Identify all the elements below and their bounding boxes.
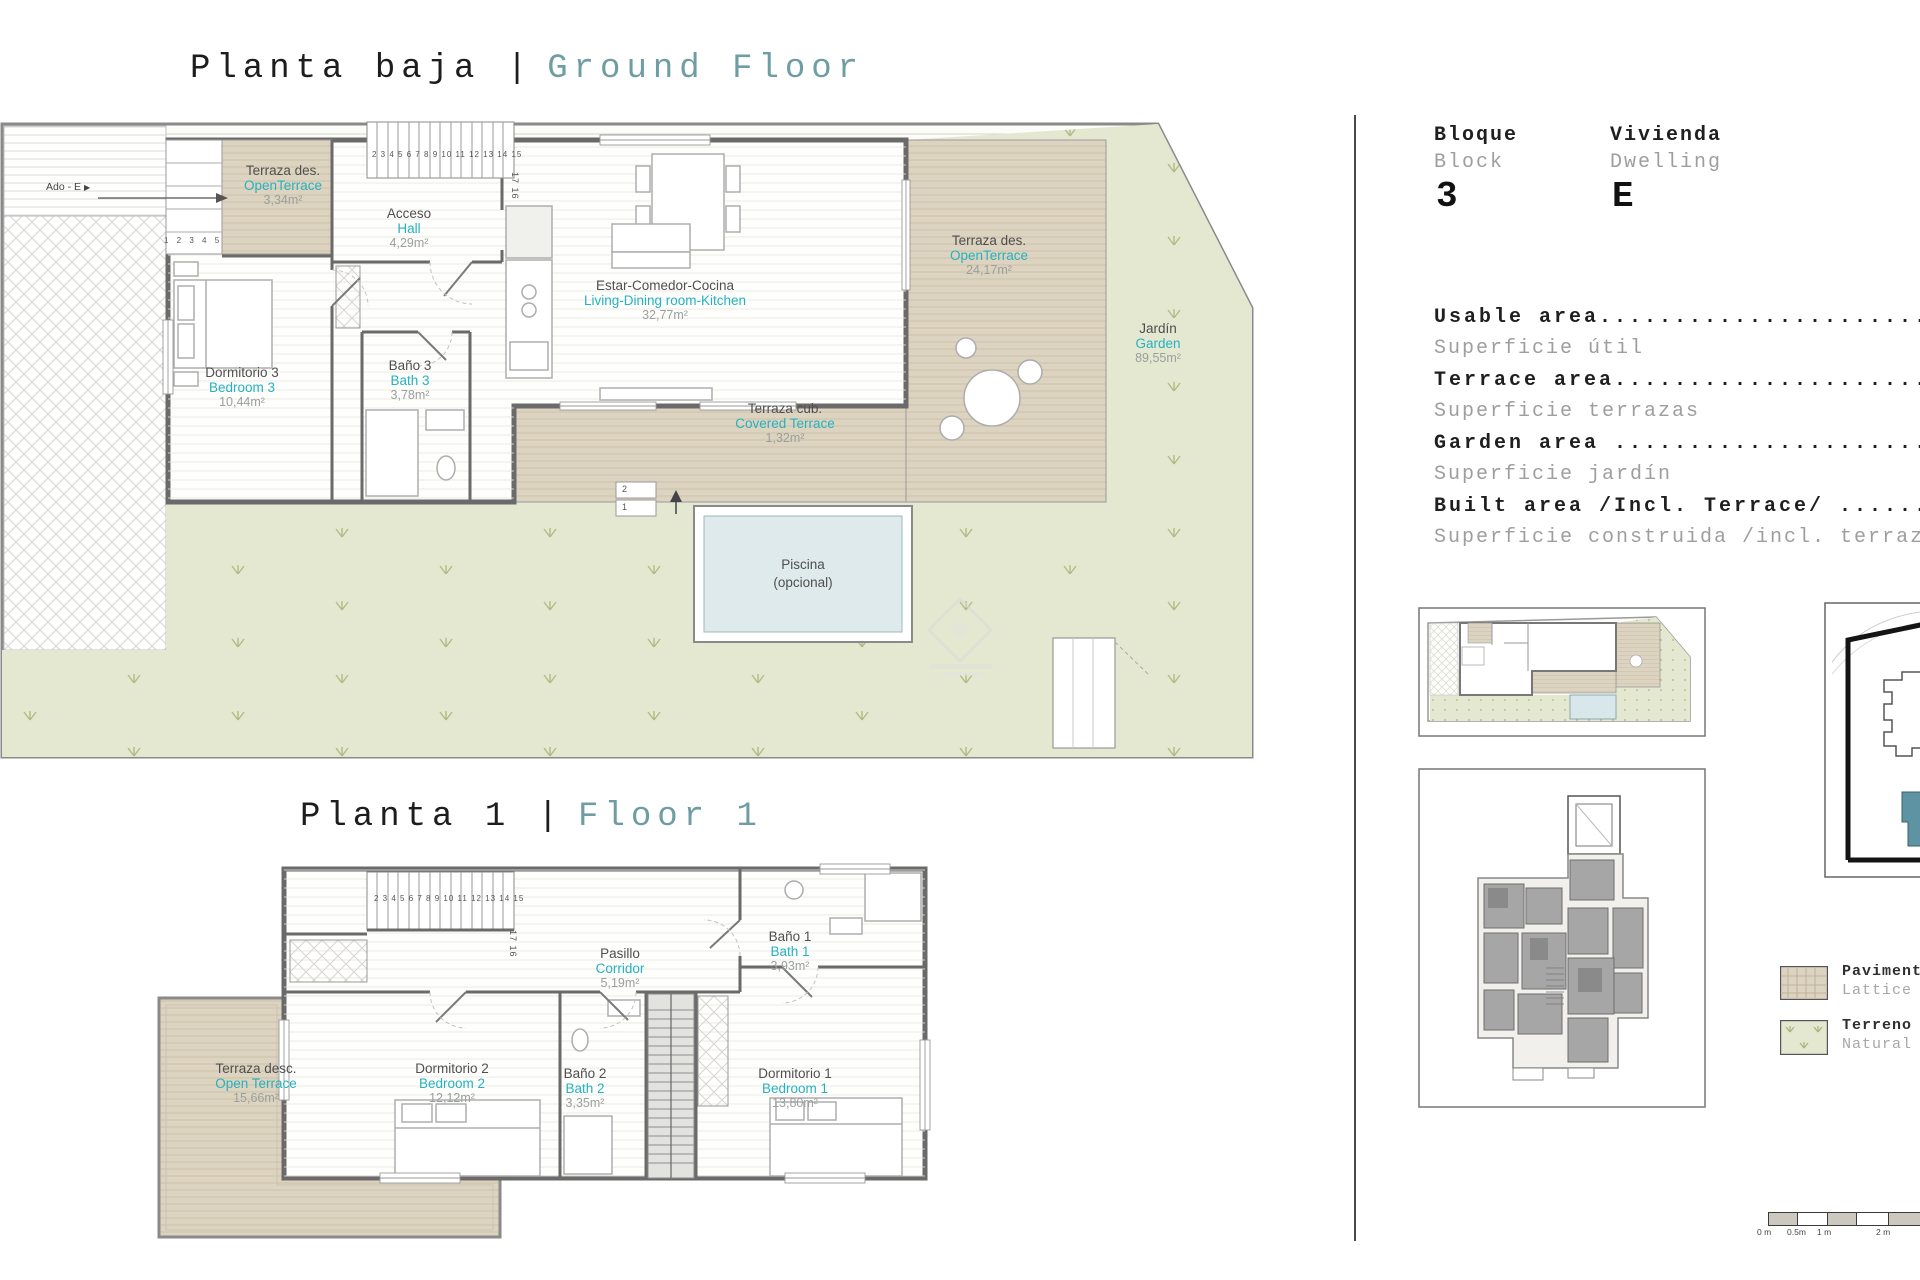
stair-numbers-top-f1: 2 3 4 5 6 7 8 9 10 11 12 13 14 15: [374, 894, 524, 903]
legend-swatch-lattice: [1780, 966, 1828, 1000]
room-label-bedroom2: Dormitorio 2 Bedroom 2 12,12m²: [415, 1061, 489, 1106]
ground-floor-title: Planta baja |Ground Floor: [190, 50, 864, 88]
area-row-built: Built area /Incl. Terrace/ .............…: [1434, 495, 1920, 518]
ground-floor-plan: [0, 110, 1260, 772]
stair-numbers-mid: 17 16: [510, 172, 520, 200]
scale-label-0: 0 m: [1757, 1227, 1771, 1237]
dwelling-label-es: Vivienda: [1610, 124, 1722, 147]
block-value: 3: [1436, 176, 1458, 217]
room-label-corridor: Pasillo Corridor 5,19m²: [596, 946, 645, 991]
room-label-covered-terrace: Terraza cub. Covered Terrace 1,32m²: [735, 401, 835, 446]
scale-label-05: 0.5m: [1787, 1227, 1806, 1237]
legend-label-lattice: Lattice: [1842, 982, 1912, 999]
panel-divider: [1354, 115, 1356, 1241]
stair-numbers-left: 1 2 3 4 5: [164, 236, 222, 245]
area-row-usable-es: Superficie útil: [1434, 337, 1920, 360]
stair-numbers-mid-f1: 17 16: [508, 930, 518, 958]
site-thumbnail-ground: [1418, 607, 1706, 737]
dwelling-value: E: [1612, 176, 1634, 217]
area-row-terrace: Terrace area............................…: [1434, 369, 1920, 392]
area-row-terrace-es: Superficie terrazas: [1434, 400, 1920, 423]
site-thumbnail-block: [1418, 768, 1706, 1108]
legend-label-natural: Natural: [1842, 1036, 1912, 1053]
room-label-hall: Acceso Hall 4,29m²: [387, 206, 431, 251]
room-label-terrace-f1: Terraza desc. Open Terrace 15,66m²: [215, 1061, 297, 1106]
area-row-built-es: Superficie construida /incl. terraza/: [1434, 526, 1920, 549]
room-label-living: Estar-Comedor-Cocina Living-Dining room-…: [584, 278, 746, 323]
floor1-title-en: Floor 1: [564, 798, 763, 836]
scale-label-1: 1 m: [1817, 1227, 1831, 1237]
room-label-bath2: Baño 2 Bath 2 3,35m²: [564, 1066, 607, 1111]
area-row-garden: Garden area ............................…: [1434, 432, 1920, 455]
scale-label-2: 2 m: [1876, 1227, 1890, 1237]
floor1-title: Planta 1 |Floor 1: [300, 798, 763, 836]
legend-label-terreno: Terreno: [1842, 1017, 1912, 1034]
ground-floor-title-es: Planta baja |: [190, 50, 533, 88]
block-label-es: Bloque: [1434, 124, 1518, 147]
pool-label: Piscina (opcional): [773, 556, 832, 592]
stair-numbers-top: 2 3 4 5 6 7 8 9 10 11 12 13 14 15: [372, 150, 522, 159]
room-label-garden: Jardín Garden 89,55m²: [1135, 321, 1181, 366]
room-label-terrace-small: Terraza des. OpenTerrace 3,34m²: [244, 163, 322, 208]
legend-swatch-natural: [1780, 1020, 1828, 1055]
legend-label-pavimento: Pavimento: [1842, 963, 1920, 980]
room-label-bedroom3: Dormitorio 3 Bedroom 3 10,44m²: [205, 365, 279, 410]
floor1-plan: [130, 860, 940, 1260]
area-row-garden-es: Superficie jardín: [1434, 463, 1920, 486]
ground-floor-title-en: Ground Floor: [533, 50, 864, 88]
room-label-bedroom1: Dormitorio 1 Bedroom 1 13,80m²: [758, 1066, 832, 1111]
pool-step-2: 2: [622, 484, 628, 494]
room-label-bath3: Baño 3 Bath 3 3,78m²: [389, 358, 432, 403]
block-label-en: Block: [1434, 151, 1504, 174]
room-label-bath1: Baño 1 Bath 1 3,93m²: [769, 929, 812, 974]
scale-bar: [1768, 1212, 1920, 1226]
dwelling-label-en: Dwelling: [1610, 151, 1722, 174]
floorplan-sheet: Planta baja |Ground Floor Planta 1 |Floo…: [0, 0, 1920, 1280]
area-row-usable: Usable area.............................…: [1434, 306, 1920, 329]
floor1-title-es: Planta 1 |: [300, 798, 564, 836]
room-label-terrace-right: Terraza des. OpenTerrace 24,17m²: [950, 233, 1028, 278]
site-location-map: [1824, 602, 1920, 878]
arrow-right-icon: ▶: [84, 183, 90, 192]
pool-step-1: 1: [622, 502, 628, 512]
neighbor-label: Ado - E ▶: [46, 181, 90, 193]
